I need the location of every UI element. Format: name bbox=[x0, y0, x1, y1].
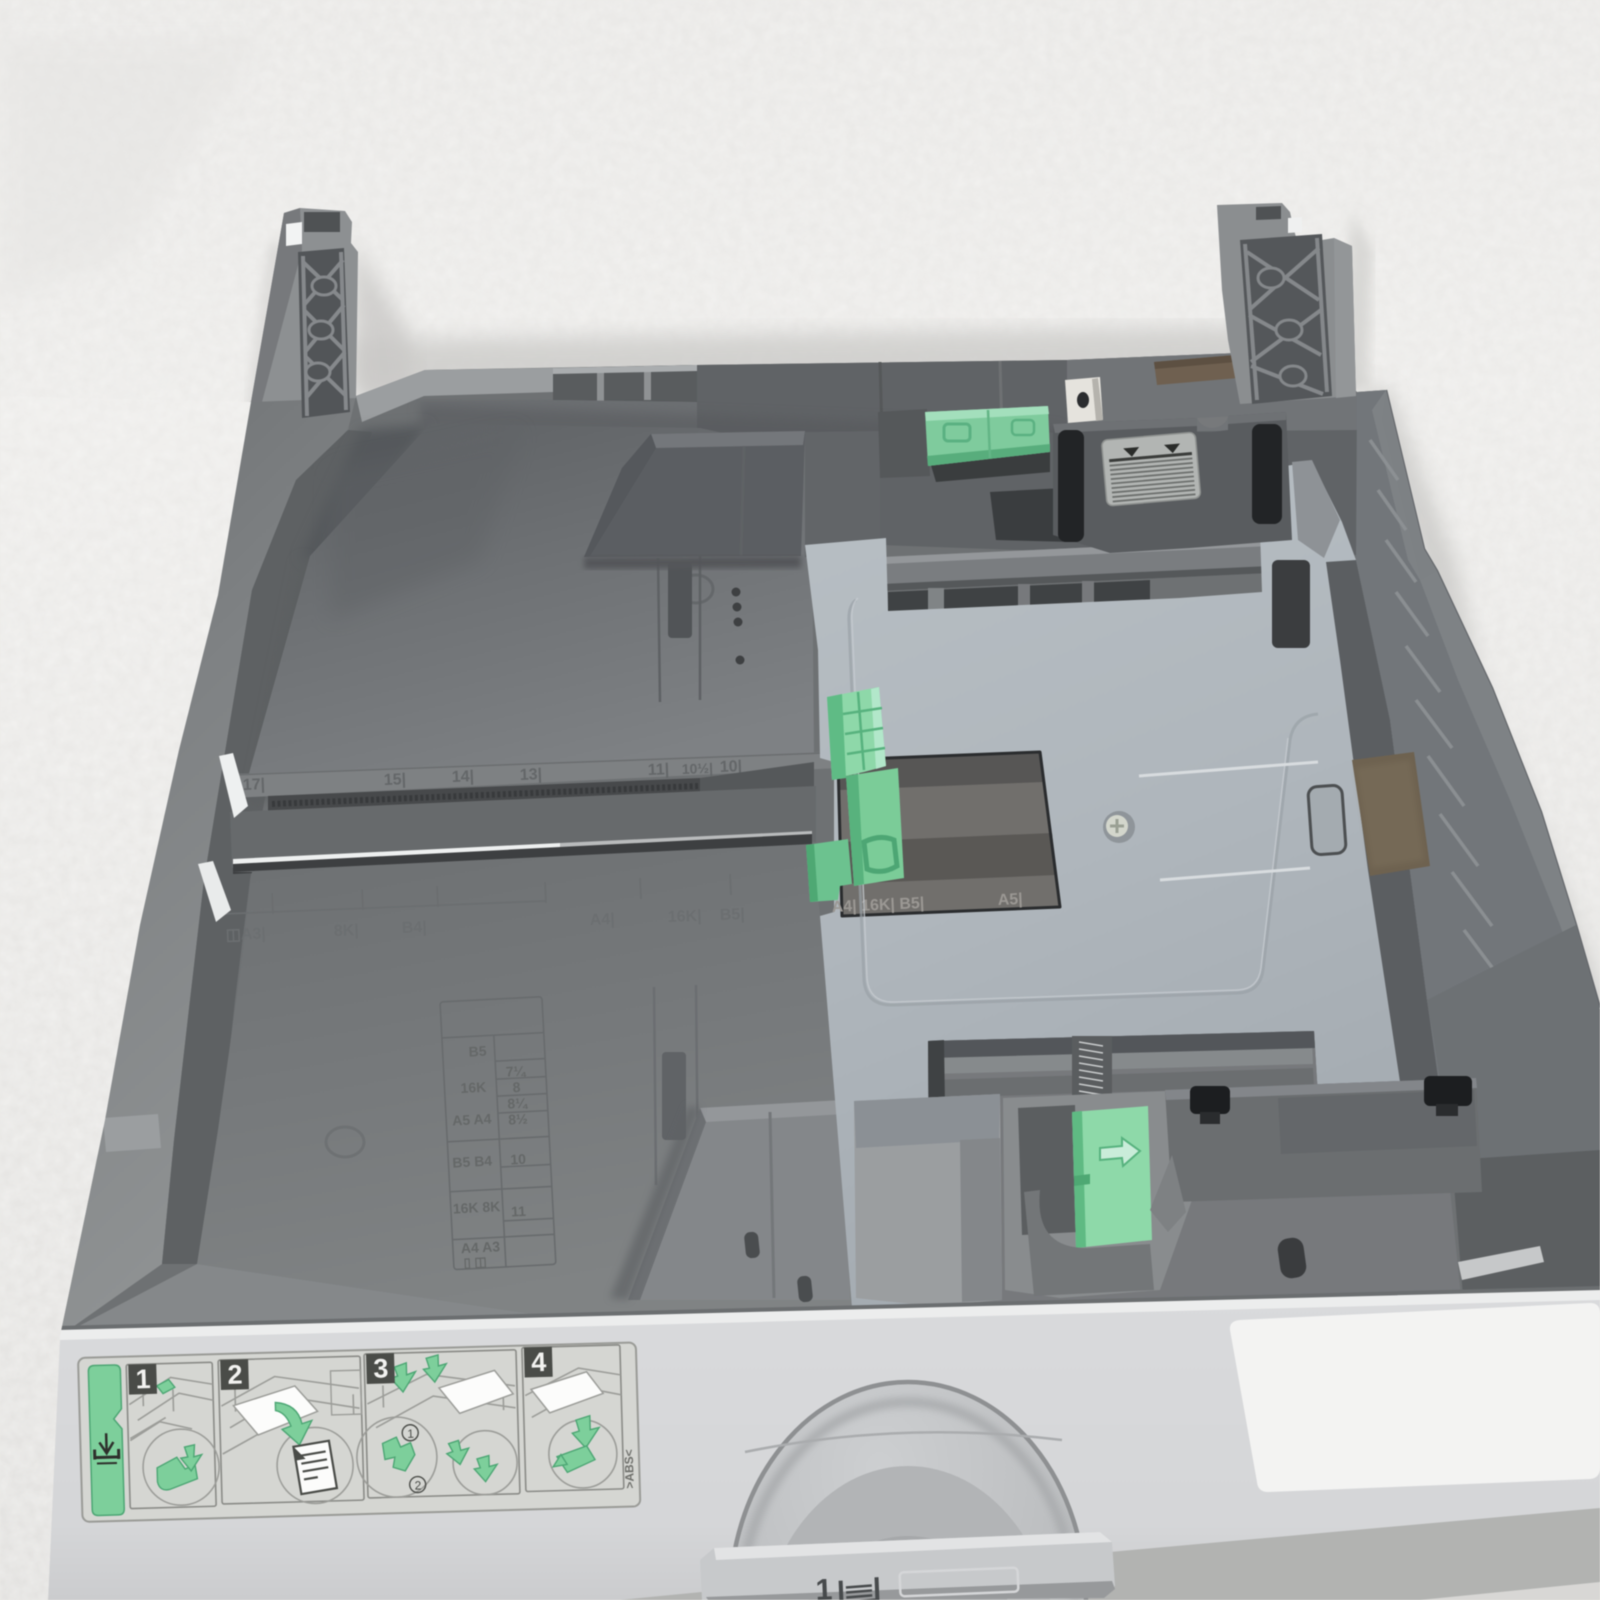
svg-text:10: 10 bbox=[510, 1151, 527, 1168]
svg-text:◫A3|: ◫A3| bbox=[226, 925, 267, 944]
svg-text:1: 1 bbox=[407, 1427, 414, 1441]
svg-text:7¼: 7¼ bbox=[505, 1063, 527, 1080]
svg-text:A4|: A4| bbox=[590, 911, 616, 929]
svg-text:8: 8 bbox=[512, 1079, 521, 1095]
svg-text:4: 4 bbox=[531, 1347, 547, 1377]
svg-text:3: 3 bbox=[373, 1353, 389, 1383]
svg-text:B5 B4: B5 B4 bbox=[452, 1152, 493, 1170]
svg-text:16K 8K: 16K 8K bbox=[452, 1198, 500, 1216]
svg-text:A5|: A5| bbox=[997, 891, 1023, 909]
svg-text:13|: 13| bbox=[520, 766, 543, 784]
svg-text:1: 1 bbox=[815, 1573, 833, 1600]
svg-text:8½: 8½ bbox=[508, 1111, 529, 1128]
svg-text:16K: 16K bbox=[460, 1079, 486, 1096]
svg-text:15|: 15| bbox=[384, 771, 407, 789]
svg-text:11|: 11| bbox=[648, 761, 670, 779]
svg-text:B5: B5 bbox=[468, 1043, 487, 1060]
svg-text:17|: 17| bbox=[243, 776, 266, 794]
svg-text:A5 A4: A5 A4 bbox=[452, 1110, 492, 1128]
svg-text:B4|: B4| bbox=[402, 919, 428, 937]
svg-text:14|: 14| bbox=[452, 768, 475, 786]
svg-text:11: 11 bbox=[511, 1203, 527, 1220]
svg-text:16K|: 16K| bbox=[668, 908, 702, 926]
svg-text:8K|: 8K| bbox=[334, 922, 360, 940]
svg-text:1: 1 bbox=[135, 1364, 151, 1394]
svg-text:2: 2 bbox=[414, 1478, 421, 1492]
svg-text:>ABS<: >ABS< bbox=[622, 1449, 637, 1489]
svg-text:8¼: 8¼ bbox=[507, 1095, 529, 1112]
svg-text:B5|: B5| bbox=[720, 906, 746, 924]
svg-text:2: 2 bbox=[227, 1359, 243, 1389]
svg-text:10½|: 10½| bbox=[682, 760, 714, 777]
svg-text:▯ ◫: ▯ ◫ bbox=[463, 1254, 487, 1270]
